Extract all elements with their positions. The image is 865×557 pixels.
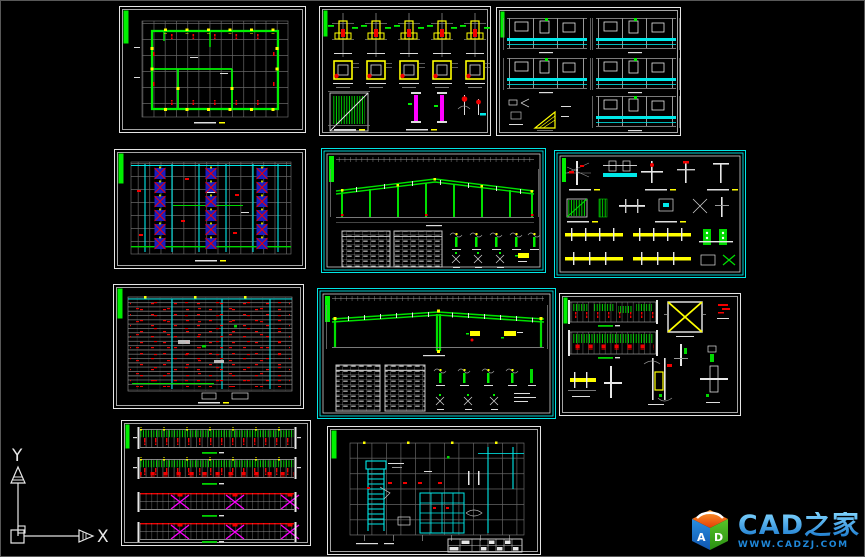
ucs-y-arrow bbox=[11, 467, 25, 483]
connection-details-drawing bbox=[555, 151, 745, 277]
joint-details-row1 bbox=[565, 161, 738, 191]
beam-details-row4 bbox=[565, 252, 735, 265]
portal-frame-elevation bbox=[330, 157, 539, 226]
sheet-foundation-plan[interactable] bbox=[327, 426, 541, 555]
mid-details bbox=[674, 344, 716, 366]
cadzj-logo-title: CAD之家 bbox=[738, 512, 860, 539]
anchor-bolt-details bbox=[408, 92, 447, 123]
sheet-roof-bracing-plan[interactable] bbox=[114, 149, 306, 269]
sheet-bracing-details[interactable] bbox=[559, 293, 741, 416]
connection-minidetails bbox=[434, 369, 536, 410]
cross-brace-detail bbox=[664, 302, 706, 337]
portal-frame-elevation bbox=[326, 296, 548, 356]
misc-details bbox=[509, 99, 571, 131]
cube-letter-d: D bbox=[714, 531, 723, 544]
sheet-connection-details[interactable] bbox=[554, 150, 746, 278]
member-schedule-table-2 bbox=[385, 365, 425, 411]
portal-frame-1-drawing bbox=[322, 149, 545, 272]
sheet-portal-frame-1[interactable] bbox=[321, 148, 546, 273]
ucs-x-label: X bbox=[97, 527, 109, 547]
ring-beam-plan-drawing bbox=[120, 7, 305, 132]
title-block bbox=[448, 539, 522, 552]
member-schedule-table-1 bbox=[342, 231, 390, 267]
cadzj-watermark: A D CAD之家 WWW.CADZJ.COM bbox=[688, 508, 860, 554]
bracing-elevation-1 bbox=[568, 300, 658, 327]
portal-frame-2-drawing bbox=[318, 289, 555, 418]
foundation-plan-drawing bbox=[328, 427, 540, 554]
rebar-details bbox=[458, 95, 486, 116]
drawing-title bbox=[194, 122, 225, 124]
column-details-drawing bbox=[320, 7, 490, 135]
wall-bracing-drawing bbox=[122, 421, 310, 545]
member-schedule-table-2 bbox=[394, 231, 442, 267]
sheet-column-details[interactable] bbox=[319, 6, 491, 136]
wall-sections-drawing bbox=[497, 8, 680, 135]
sheet-portal-frame-2[interactable] bbox=[317, 288, 556, 419]
elevation-strip-1 bbox=[133, 427, 301, 454]
sheet-wall-sections[interactable] bbox=[496, 7, 681, 136]
sheet-ring-beam-plan[interactable] bbox=[119, 6, 306, 133]
bottom-details bbox=[568, 358, 728, 405]
ucs-x-arrow bbox=[79, 530, 93, 542]
sheet-margin-bar bbox=[124, 11, 129, 44]
roof-bracing-plan-drawing bbox=[115, 150, 305, 268]
cube-letter-a: A bbox=[697, 531, 706, 544]
standalone-details bbox=[466, 331, 523, 342]
rebar-scribble bbox=[717, 304, 730, 319]
joint-details-row2 bbox=[567, 197, 729, 223]
member-schedule-table-1 bbox=[336, 365, 380, 411]
beam-details-row3 bbox=[565, 228, 733, 245]
ucs-icon[interactable]: Y X bbox=[5, 439, 110, 557]
ucs-y-label: Y bbox=[11, 446, 23, 466]
bracing-details-drawing bbox=[560, 294, 740, 415]
brace-strip-1 bbox=[138, 492, 300, 517]
sheet-purlin-plan[interactable] bbox=[113, 284, 304, 409]
bracing-elevation-2 bbox=[568, 330, 658, 359]
brace-strip-2 bbox=[138, 522, 300, 543]
elevation-strip-2 bbox=[133, 457, 301, 485]
cad-model-space: Y X A D CAD之家 WWW.CADZJ.COM bbox=[0, 0, 865, 557]
cadzj-cube-icon: A D bbox=[688, 508, 732, 554]
connection-minidetails bbox=[450, 233, 540, 268]
cadzj-logo-url: WWW.CADZJ.COM bbox=[738, 541, 860, 550]
sheet-wall-bracing-elevations[interactable] bbox=[121, 420, 311, 546]
purlin-plan-drawing bbox=[114, 285, 303, 408]
hatched-footing-detail bbox=[328, 91, 370, 131]
